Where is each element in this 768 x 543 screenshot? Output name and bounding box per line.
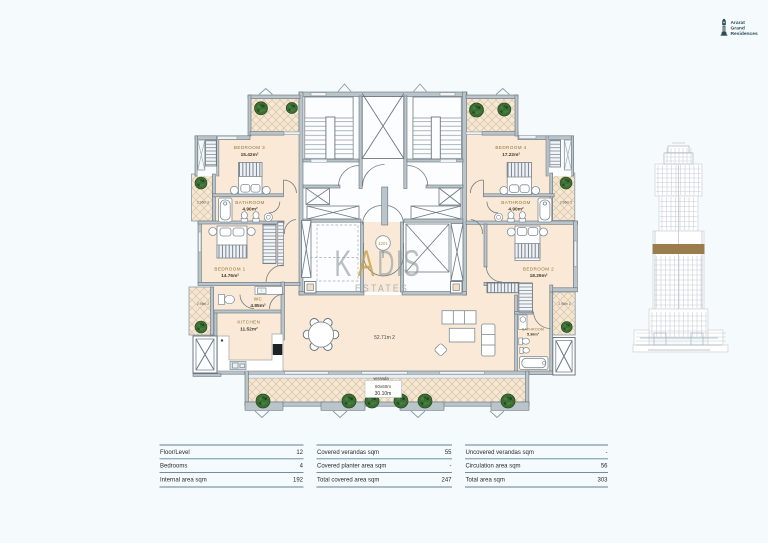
svg-text:Grand: Grand [731, 25, 745, 31]
svg-text:BEDROOM 4: BEDROOM 4 [495, 145, 526, 150]
svg-text:Residences: Residences [731, 31, 758, 37]
svg-text:BATHROOM: BATHROOM [235, 200, 264, 205]
svg-text:17.22m²: 17.22m² [502, 152, 520, 158]
svg-text:Total area sqm: Total area sqm [466, 477, 505, 483]
svg-text:D: D [377, 242, 394, 284]
svg-text:2.96m 2: 2.96m 2 [197, 302, 209, 306]
svg-text:A: A [358, 242, 375, 284]
svg-text:S: S [403, 242, 420, 284]
svg-text:Floor/Level: Floor/Level [160, 450, 190, 456]
svg-text:Total covered area sqm: Total covered area sqm [317, 477, 379, 483]
svg-text:ESTATES: ESTATES [355, 284, 409, 295]
svg-text:247: 247 [441, 477, 452, 483]
svg-text:Covered verandas sqm: Covered verandas sqm [317, 450, 379, 456]
svg-text:Covered planter area sqm: Covered planter area sqm [317, 463, 386, 469]
svg-text:15.42m²: 15.42m² [241, 152, 259, 158]
svg-text:Internal area sqm: Internal area sqm [160, 477, 207, 483]
svg-text:4.90m²: 4.90m² [508, 207, 524, 213]
svg-text:KITCHEN: KITCHEN [237, 320, 260, 325]
svg-text:WC: WC [254, 297, 263, 302]
svg-text:2.96m 2: 2.96m 2 [560, 200, 572, 204]
svg-text:-: - [606, 450, 608, 456]
svg-text:BATHROOM: BATHROOM [501, 200, 530, 205]
svg-text:12: 12 [296, 450, 303, 456]
svg-text:192: 192 [293, 477, 304, 483]
svg-text:BATHROOM: BATHROOM [522, 328, 544, 332]
svg-text:11.52m²: 11.52m² [240, 326, 258, 332]
svg-text:14.76m²: 14.76m² [221, 273, 239, 279]
svg-text:55: 55 [445, 450, 452, 456]
svg-text:30.10m: 30.10m [375, 391, 392, 397]
svg-text:Bedrooms: Bedrooms [160, 463, 187, 469]
svg-text:Ararat: Ararat [731, 20, 746, 26]
svg-text:52.71m 2: 52.71m 2 [374, 335, 395, 341]
svg-text:Circulation area sqm: Circulation area sqm [466, 463, 521, 469]
svg-text:18.29m²: 18.29m² [530, 273, 548, 279]
svg-text:Uncovered verandas sqm: Uncovered verandas sqm [466, 450, 534, 456]
svg-text:-: - [450, 463, 452, 469]
svg-text:56: 56 [601, 463, 608, 469]
svg-text:K: K [334, 242, 351, 284]
svg-text:BEDROOM 2: BEDROOM 2 [523, 267, 554, 272]
svg-text:2.96m 2: 2.96m 2 [558, 302, 570, 306]
svg-text:BEDROOM 3: BEDROOM 3 [234, 145, 265, 150]
svg-text:4.85m²: 4.85m² [250, 303, 266, 309]
svg-text:303: 303 [597, 477, 608, 483]
svg-text:4.90m²: 4.90m² [242, 207, 258, 213]
svg-text:BEDROOM 1: BEDROOM 1 [214, 267, 245, 272]
svg-text:2.96m 2: 2.96m 2 [197, 200, 209, 204]
svg-text:60x60m: 60x60m [375, 384, 391, 389]
svg-text:5.36m²: 5.36m² [527, 333, 540, 337]
